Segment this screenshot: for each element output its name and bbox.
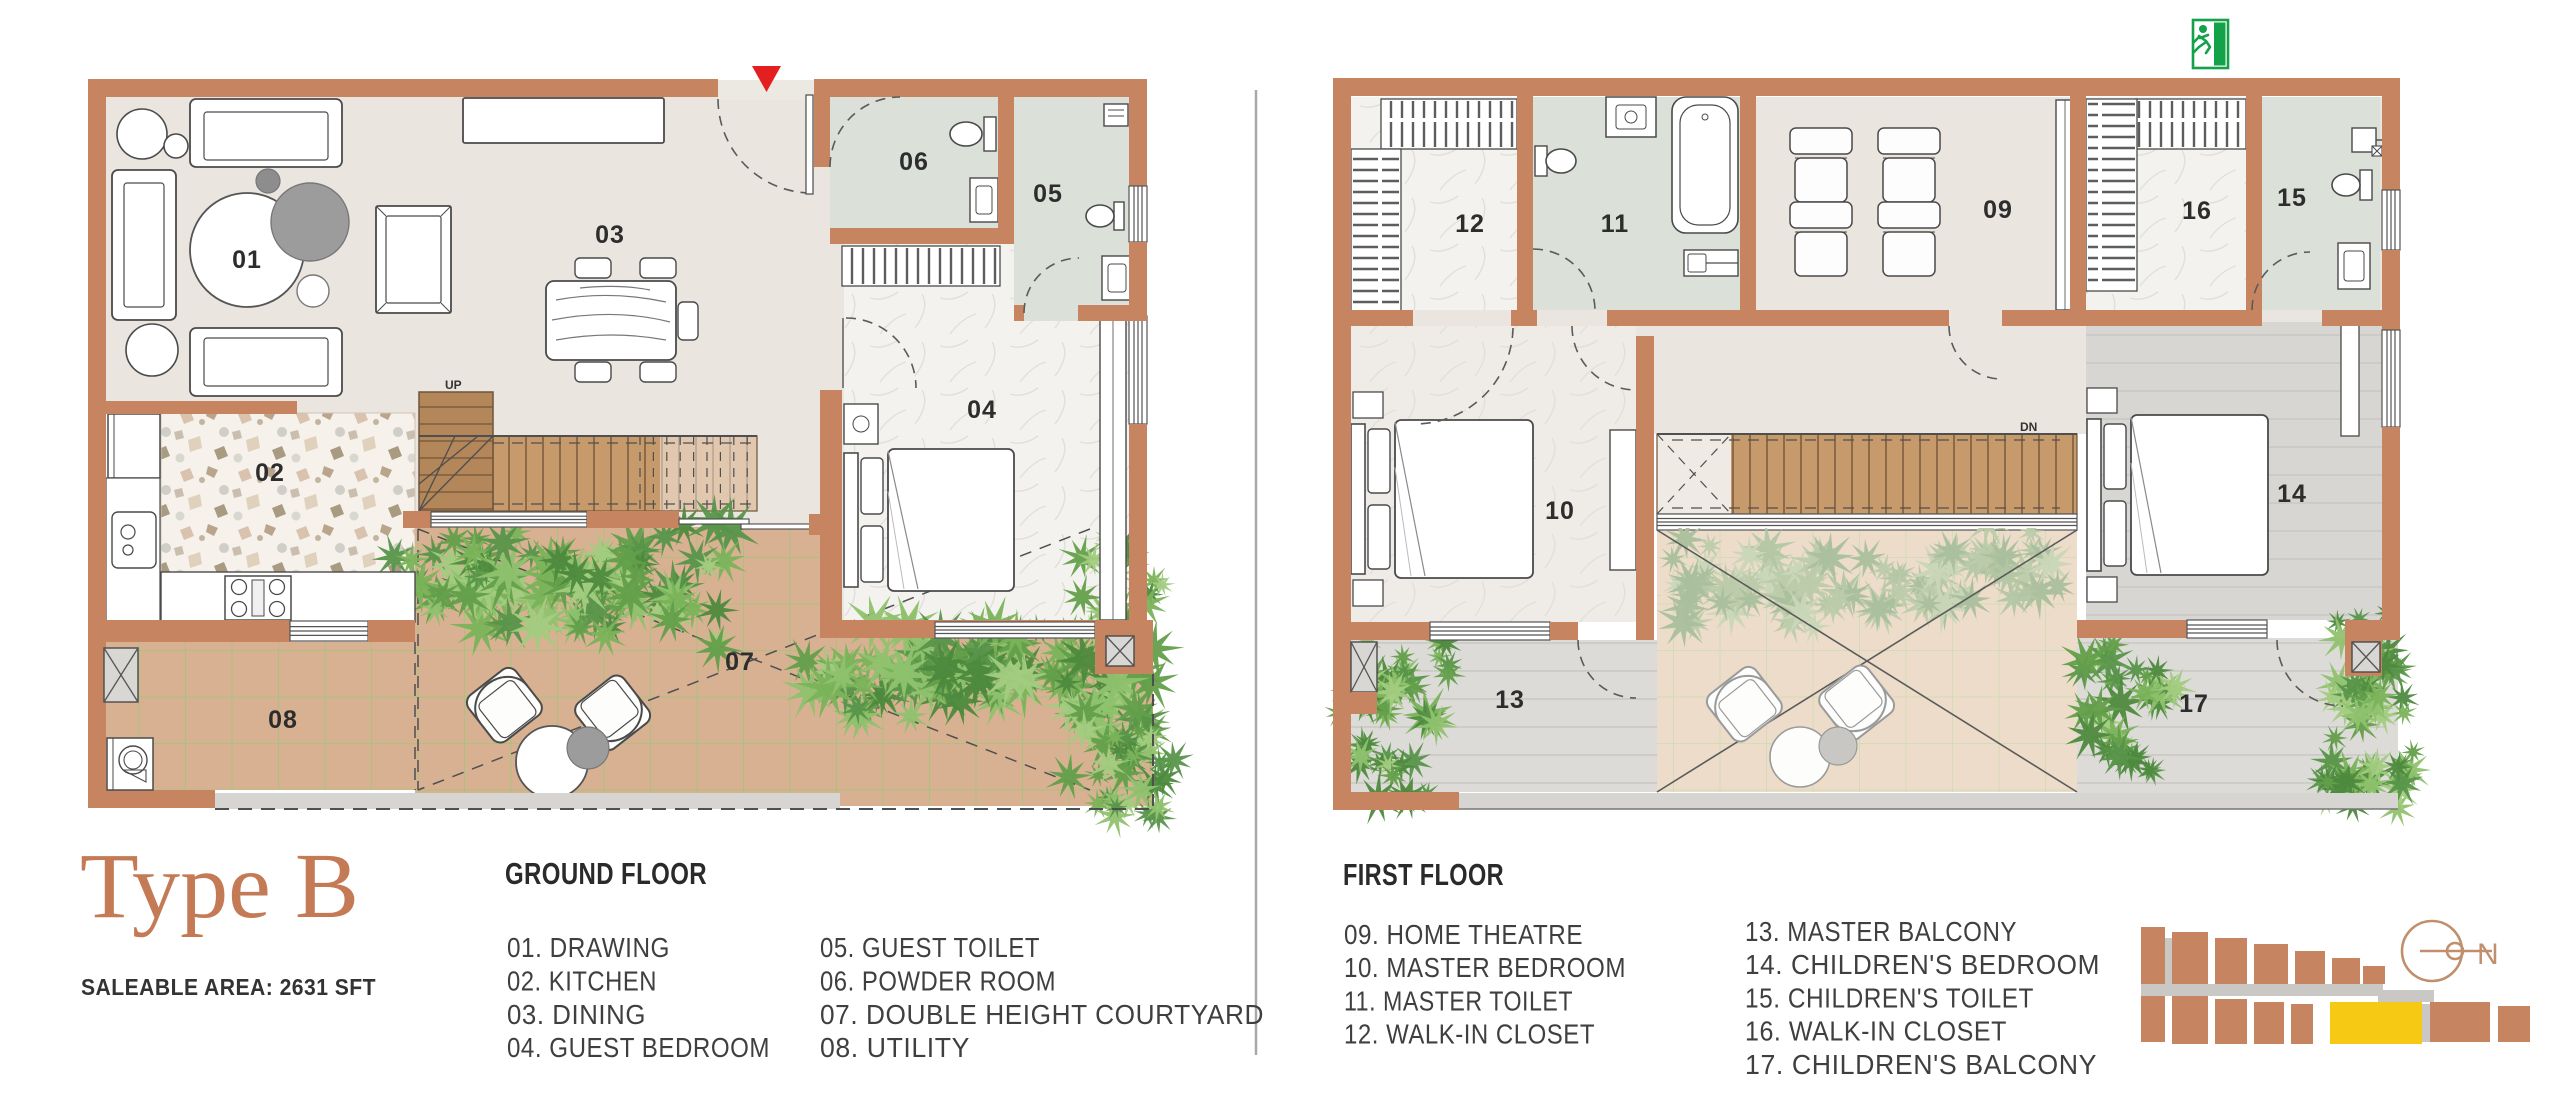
svg-text:14: 14 [2277, 480, 2307, 508]
svg-text:03: 03 [595, 221, 625, 249]
svg-text:14. CHILDREN'S BEDROOM: 14. CHILDREN'S BEDROOM [1745, 949, 2100, 980]
svg-text:05. GUEST TOILET: 05. GUEST TOILET [820, 932, 1040, 963]
svg-text:01. DRAWING: 01. DRAWING [507, 932, 670, 963]
svg-text:04. GUEST BEDROOM: 04. GUEST BEDROOM [507, 1032, 770, 1063]
svg-text:09: 09 [1983, 196, 2013, 224]
svg-text:16. WALK-IN CLOSET: 16. WALK-IN CLOSET [1745, 1016, 2007, 1047]
svg-text:Type B: Type B [80, 835, 359, 938]
svg-text:SALEABLE AREA: 2631 SFT: SALEABLE AREA: 2631 SFT [81, 974, 376, 1000]
svg-text:16: 16 [2182, 197, 2212, 225]
svg-text:05: 05 [1033, 180, 1063, 208]
svg-text:UP: UP [445, 378, 462, 392]
svg-text:11: 11 [1601, 210, 1629, 238]
svg-text:08. UTILITY: 08. UTILITY [820, 1032, 970, 1063]
svg-text:09. HOME THEATRE: 09. HOME THEATRE [1344, 919, 1583, 950]
svg-text:01: 01 [232, 246, 262, 274]
svg-text:15. CHILDREN'S TOILET: 15. CHILDREN'S TOILET [1745, 982, 2034, 1013]
svg-text:GROUND FLOOR: GROUND FLOOR [505, 856, 707, 891]
svg-text:N: N [2477, 938, 2499, 971]
svg-text:FIRST FLOOR: FIRST FLOOR [1343, 857, 1504, 892]
svg-text:02: 02 [255, 459, 285, 487]
svg-text:02. KITCHEN: 02. KITCHEN [507, 965, 657, 996]
svg-text:DN: DN [2020, 420, 2037, 434]
svg-text:17. CHILDREN'S BALCONY: 17. CHILDREN'S BALCONY [1745, 1049, 2097, 1080]
svg-text:08: 08 [268, 706, 298, 734]
svg-text:13: 13 [1495, 686, 1525, 714]
svg-text:12: 12 [1455, 210, 1485, 238]
svg-text:15: 15 [2277, 184, 2307, 212]
svg-text:10. MASTER BEDROOM: 10. MASTER BEDROOM [1344, 952, 1626, 983]
svg-text:06. POWDER ROOM: 06. POWDER ROOM [820, 965, 1056, 996]
svg-text:17: 17 [2179, 690, 2209, 718]
svg-text:13. MASTER BALCONY: 13. MASTER BALCONY [1745, 916, 2017, 947]
svg-text:04: 04 [967, 396, 997, 424]
svg-text:12. WALK-IN CLOSET: 12. WALK-IN CLOSET [1344, 1019, 1595, 1050]
svg-text:06: 06 [899, 148, 929, 176]
svg-text:07. DOUBLE HEIGHT COURTYARD: 07. DOUBLE HEIGHT COURTYARD [820, 999, 1264, 1030]
svg-text:07: 07 [725, 648, 755, 676]
svg-text:03. DINING: 03. DINING [507, 999, 646, 1030]
svg-text:11. MASTER TOILET: 11. MASTER TOILET [1344, 985, 1573, 1016]
svg-text:10: 10 [1545, 497, 1575, 525]
